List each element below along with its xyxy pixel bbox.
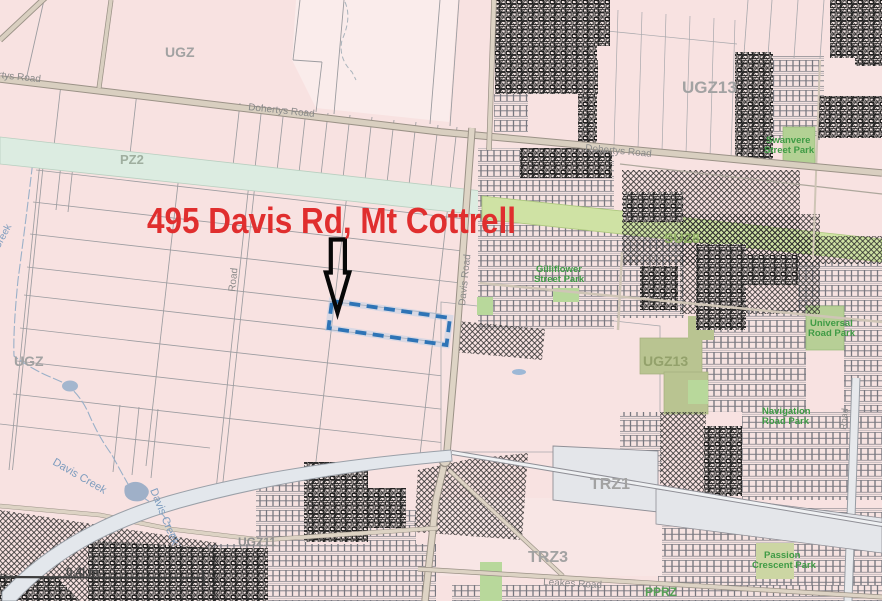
svg-text:TRZ3: TRZ3 xyxy=(528,549,568,566)
svg-text:Road Park: Road Park xyxy=(762,416,810,427)
svg-text:Street Park: Street Park xyxy=(764,145,815,156)
svg-text:PZ2: PZ2 xyxy=(120,152,144,167)
svg-text:UGZ13: UGZ13 xyxy=(682,78,737,97)
svg-text:TRZ1: TRZ1 xyxy=(590,476,630,493)
svg-text:UGZ: UGZ xyxy=(165,44,195,60)
svg-text:Road: Road xyxy=(838,408,850,430)
svg-text:Road Park: Road Park xyxy=(808,328,856,339)
svg-text:SUZ8: SUZ8 xyxy=(664,230,700,246)
svg-text:UGZ11: UGZ11 xyxy=(238,535,276,549)
svg-text:UGZ13: UGZ13 xyxy=(643,353,688,369)
svg-text:UGZ: UGZ xyxy=(14,353,44,369)
svg-text:495 Davis Rd, Mt Cottrell: 495 Davis Rd, Mt Cottrell xyxy=(147,200,516,241)
svg-text:Street Park: Street Park xyxy=(534,274,585,285)
svg-text:Crescent Park: Crescent Park xyxy=(752,560,817,571)
svg-text:PPRZ: PPRZ xyxy=(645,585,677,599)
svg-text:0.4km: 0.4km xyxy=(66,567,99,579)
